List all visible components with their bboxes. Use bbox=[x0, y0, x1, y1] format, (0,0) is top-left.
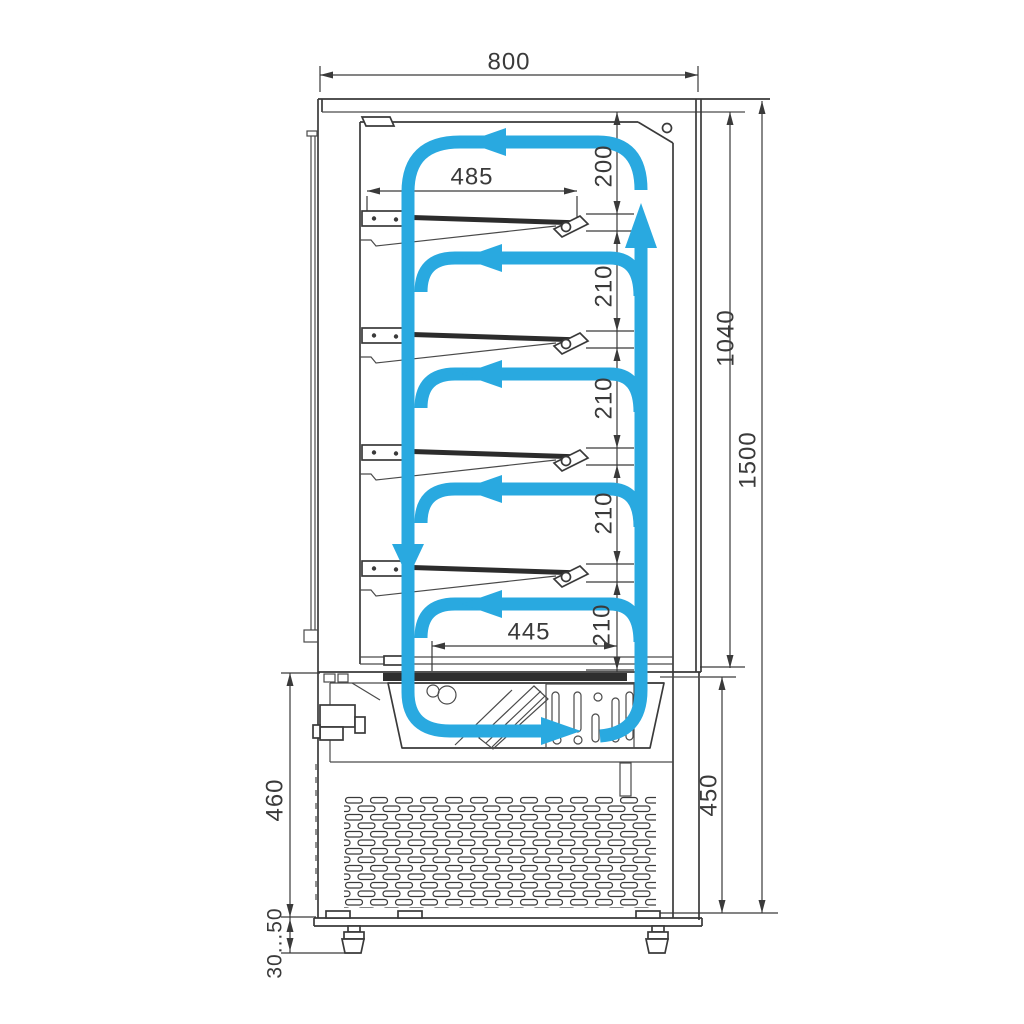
dim-label-feet-range: 30...50 bbox=[264, 907, 287, 978]
ventilation-grille bbox=[344, 796, 656, 908]
dim-label-gap-4: 210 bbox=[589, 603, 616, 646]
lamp-icon bbox=[663, 124, 672, 133]
case-floor-bar bbox=[383, 673, 627, 681]
dim-label-gap-2: 210 bbox=[591, 376, 618, 419]
dim-label-inner-height: 1040 bbox=[713, 309, 740, 366]
dim-label-gap-3: 210 bbox=[591, 491, 618, 534]
dim-label-base-height-right: 450 bbox=[696, 773, 723, 816]
dim-label-top-gap: 200 bbox=[591, 144, 618, 187]
dim-label-base-height-left: 460 bbox=[262, 778, 289, 821]
dim-label-bottom-span: 445 bbox=[507, 619, 550, 646]
interior-light-fixture bbox=[362, 117, 394, 126]
dim-label-total-height: 1500 bbox=[735, 431, 762, 488]
refrigerated-display-case-section-diagram: 800 485 445 200 210 210 210 210 1040 150… bbox=[0, 0, 1024, 1024]
dim-label-gap-1: 210 bbox=[591, 264, 618, 307]
dim-label-shelf-span: 485 bbox=[450, 164, 493, 191]
diagram-canvas: 800 485 445 200 210 210 210 210 1040 150… bbox=[0, 0, 1024, 1024]
dim-label-width-top: 800 bbox=[487, 49, 530, 76]
